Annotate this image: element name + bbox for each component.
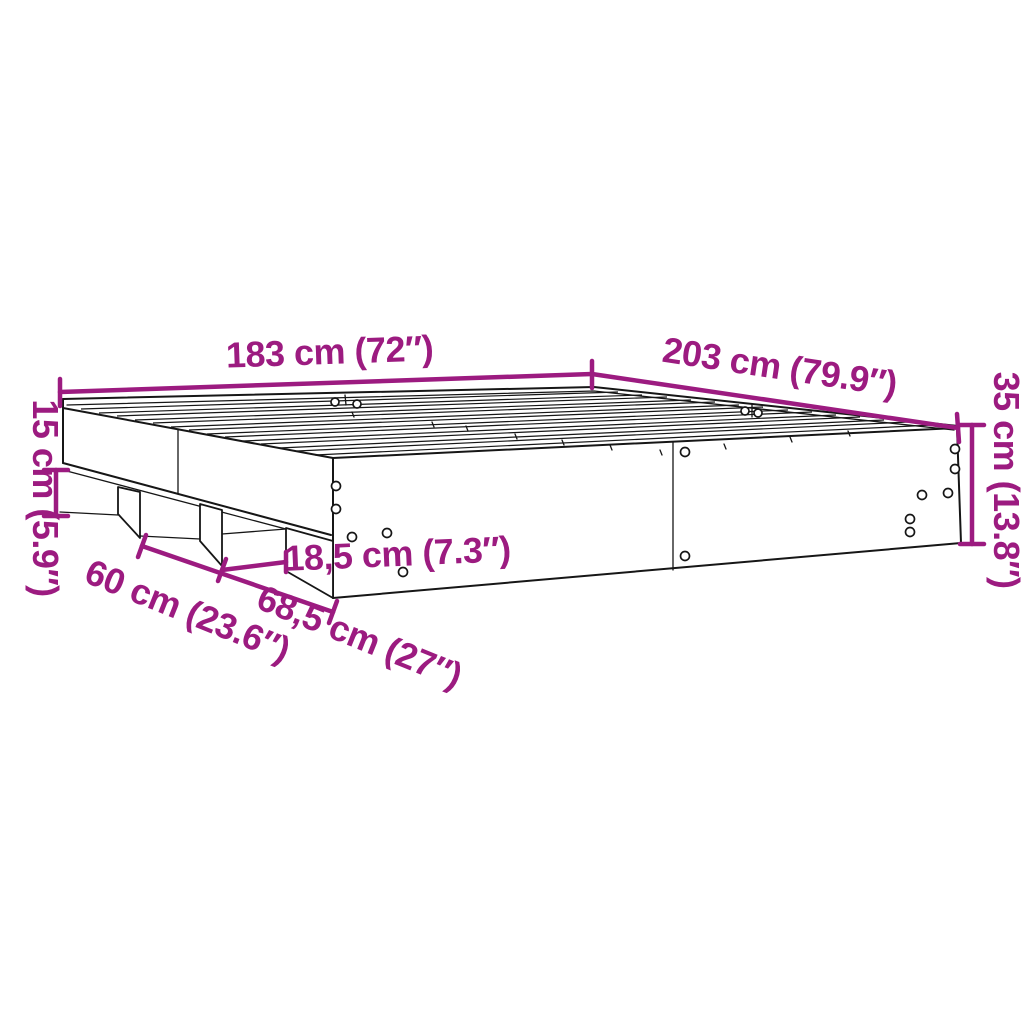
head-rail-face	[63, 408, 331, 541]
dimension-label-height: 35 cm (13.8″)	[986, 372, 1024, 589]
bed-frame-dimension-diagram: 183 cm (72″) 203 cm (79.9″) 35 cm (13.8″…	[0, 0, 1024, 1024]
dimension-height: 35 cm (13.8″)	[960, 372, 1024, 589]
dimension-clearance: 15 cm (5.9″)	[25, 399, 68, 596]
dimension-label-width: 183 cm (72″)	[225, 327, 434, 375]
dimension-label-support-gap: 18,5 cm (7.3″)	[283, 528, 511, 579]
diagram-canvas: 183 cm (72″) 203 cm (79.9″) 35 cm (13.8″…	[0, 0, 1024, 1024]
dimension-support-gap: 18,5 cm (7.3″)	[222, 528, 511, 579]
support-panel	[118, 487, 140, 538]
dimension-label-length: 203 cm (79.9″)	[660, 329, 900, 404]
support-panel	[200, 504, 222, 566]
dimension-width: 183 cm (72″)	[60, 327, 592, 406]
dimension-label-clearance: 15 cm (5.9″)	[25, 399, 66, 596]
